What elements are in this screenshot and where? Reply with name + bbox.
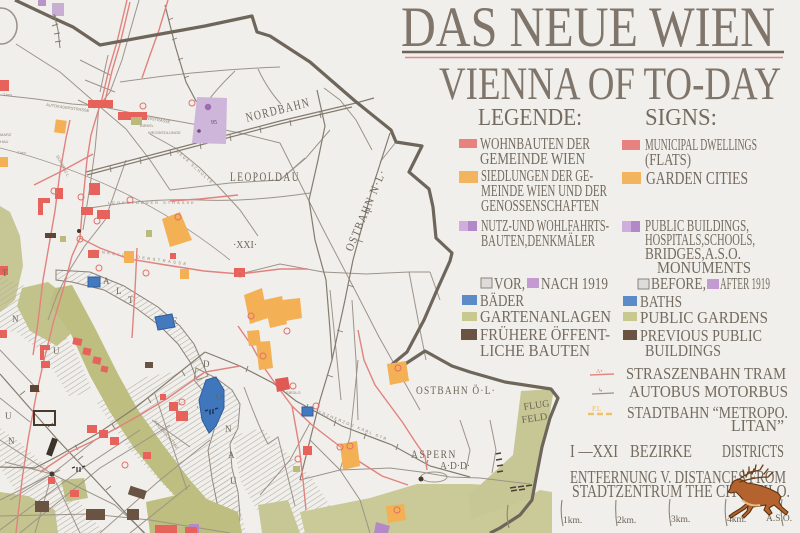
svg-text:·XXI·: ·XXI· [233, 239, 257, 251]
svg-text:GARDEN CITIES: GARDEN CITIES [646, 168, 748, 188]
svg-text:2km.: 2km. [617, 516, 636, 526]
svg-text:MARZ: MARZ [0, 132, 12, 137]
svg-text:1km.: 1km. [563, 516, 582, 526]
svg-text:BAUTEN,DENKMÄLER: BAUTEN,DENKMÄLER [481, 231, 595, 250]
svg-text:7 km: 7 km [17, 150, 26, 155]
svg-text:WEGSIEDLUNGE: WEGSIEDLUNGE [148, 130, 181, 135]
svg-text:HAU: HAU [0, 139, 9, 144]
svg-text:U: U [230, 476, 237, 486]
svg-text:BEZIRKE: BEZIRKE [630, 441, 692, 461]
svg-text:NACH 1919: NACH 1919 [541, 274, 608, 293]
svg-text:SIGNS:: SIGNS: [645, 105, 717, 131]
svg-text:N: N [8, 436, 15, 446]
svg-text:LEGENDE:: LEGENDE: [478, 105, 582, 131]
svg-text:·: · [196, 403, 199, 412]
svg-text:↳: ↳ [598, 387, 603, 394]
svg-text:I —XXI: I —XXI [570, 441, 618, 461]
svg-text:N: N [225, 424, 232, 434]
svg-text:BEFORE,: BEFORE, [651, 274, 706, 293]
svg-text:STRASZENBAHN TRAM: STRASZENBAHN TRAM [626, 364, 786, 383]
svg-text:O: O [216, 392, 223, 402]
svg-text:A: A [228, 450, 235, 460]
svg-text:N: N [12, 314, 19, 324]
svg-text:DAS NEUE WIEN: DAS NEUE WIEN [401, 0, 775, 59]
svg-text:A•: A• [596, 369, 602, 375]
svg-text:A·D·D·: A·D·D· [440, 461, 470, 472]
svg-text:PUBLIC GARDENS: PUBLIC GARDENS [640, 308, 768, 327]
svg-text:3km.: 3km. [671, 515, 690, 525]
svg-text:A: A [103, 276, 110, 286]
svg-text:7 km: 7 km [3, 92, 12, 97]
svg-text:L: L [116, 286, 122, 296]
svg-text:T: T [128, 295, 134, 305]
svg-text:GARTENANLAGEN: GARTENANLAGEN [480, 307, 611, 326]
svg-text:D: D [203, 359, 210, 369]
svg-text:95: 95 [211, 120, 217, 126]
svg-text:ASPERN: ASPERN [411, 447, 457, 461]
svg-text:OSTBAHN Ö·L·: OSTBAHN Ö·L· [416, 383, 496, 397]
svg-text:LITAN”: LITAN” [731, 416, 784, 435]
svg-text:AFTER 1919: AFTER 1919 [720, 274, 770, 293]
svg-text:DISTRICTS: DISTRICTS [722, 441, 784, 461]
svg-text:P.L: P.L [592, 405, 601, 413]
svg-text:AUTOBUS MOTORBUS: AUTOBUS MOTORBUS [629, 382, 788, 401]
svg-text:U: U [53, 346, 60, 356]
svg-text:U: U [5, 411, 12, 421]
svg-text:GENOSSENSCHAFTEN: GENOSSENSCHAFTEN [481, 196, 599, 215]
svg-text:LEOPOLDAU: LEOPOLDAU [230, 170, 300, 184]
svg-text:BIRKE•: BIRKE• [140, 123, 154, 128]
svg-text:BUILDINGS: BUILDINGS [645, 341, 721, 360]
svg-text:A.S.O.: A.S.O. [766, 514, 792, 524]
svg-text:T: T [2, 268, 8, 278]
svg-text:LICHE BAUTEN: LICHE BAUTEN [480, 341, 590, 360]
svg-text:E: E [172, 316, 178, 326]
svg-text:VIENNA OF TO-DAY: VIENNA OF TO-DAY [439, 58, 781, 110]
svg-text:(FLATS): (FLATS) [645, 150, 691, 169]
